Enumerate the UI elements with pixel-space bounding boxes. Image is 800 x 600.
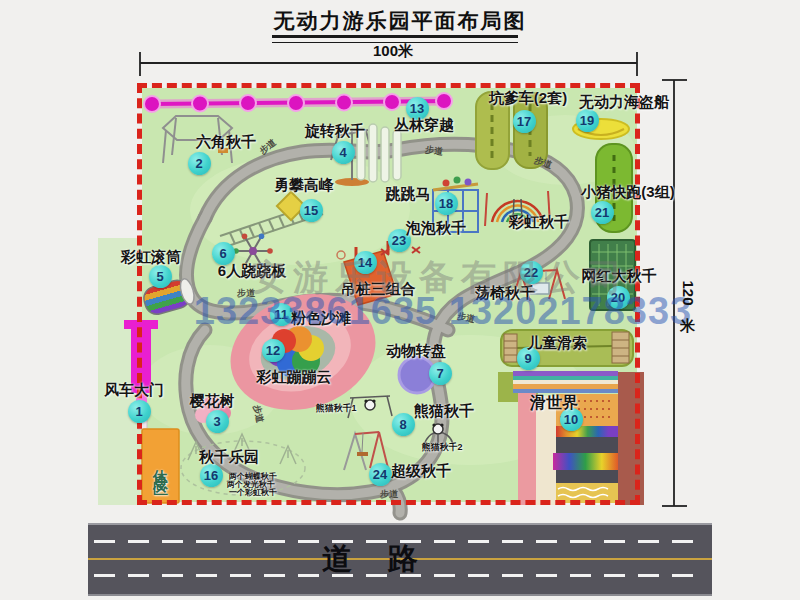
poi-label-21: 小猪快跑(3组) — [581, 183, 674, 202]
poi-label-10: 滑世界 — [530, 393, 578, 414]
poi-label-1: 风车大门 — [104, 381, 164, 400]
poi-label-2: 六角秋千 — [196, 133, 256, 152]
poi-label-9: 儿童滑索 — [527, 334, 587, 353]
dimension-height-label: 120米 — [678, 280, 697, 305]
path-label-5: 步道 — [250, 404, 266, 424]
map-label-3: 熊猫秋千2 — [421, 441, 462, 454]
poi-badge-3: 3 — [206, 410, 229, 433]
map-label-2: 熊猫秋千1 — [315, 402, 356, 415]
map-label-6: 一个彩虹秋千 — [229, 487, 277, 498]
page-title: 无动力游乐园平面布局图 — [0, 7, 800, 35]
poi-badge-15: 15 — [300, 199, 323, 222]
poi-badge-5: 5 — [149, 265, 172, 288]
screenshot-root: 无动力游乐园平面布局图 100米 120米 1风车大门2六角秋千3樱花树4旋转秋… — [0, 0, 800, 600]
poi-label-19: 无动力海盗船 — [579, 93, 669, 112]
map-label-0: 彩虹秋千 — [509, 213, 569, 232]
poi-label-17: 坑爹车(2套) — [489, 89, 567, 108]
poi-badge-24: 24 — [369, 463, 392, 486]
path-label-6: 步道 — [380, 488, 398, 501]
poi-label-13: 丛林穿越 — [394, 116, 454, 135]
watermark-phone: 13233861635 13202178333 — [194, 290, 693, 333]
poi-label-12: 彩虹蹦蹦云 — [257, 368, 332, 387]
poi-label-23: 泡泡秋千 — [406, 219, 466, 238]
poi-label-4: 旋转秋千 — [305, 122, 365, 141]
path-label-1: 步道 — [424, 143, 444, 158]
map-label-1: 休息区 — [151, 457, 170, 475]
poi-label-8: 熊猫秋千 — [414, 402, 474, 421]
poi-badge-21: 21 — [591, 201, 614, 224]
poi-label-7: 动物转盘 — [386, 342, 446, 361]
poi-badge-17: 17 — [513, 110, 536, 133]
poi-badge-16: 16 — [200, 464, 223, 487]
path-label-0: 步道 — [257, 136, 279, 157]
poi-badge-1: 1 — [128, 400, 151, 423]
poi-badge-18: 18 — [435, 192, 458, 215]
poi-label-15: 勇攀高峰 — [274, 176, 334, 195]
poi-label-3: 樱花树 — [190, 392, 235, 411]
poi-label-18: 跳跳马 — [386, 185, 431, 204]
poi-badge-2: 2 — [188, 152, 211, 175]
poi-badge-8: 8 — [392, 413, 415, 436]
poi-badge-19: 19 — [576, 109, 599, 132]
poi-label-5: 彩虹滚筒 — [121, 248, 181, 267]
path-label-2: 步道 — [532, 154, 553, 172]
poi-label-16: 秋千乐园 — [199, 448, 259, 467]
poi-badge-4: 4 — [332, 141, 355, 164]
poi-label-24: 超级秋千 — [391, 462, 451, 481]
poi-badge-7: 7 — [429, 362, 452, 385]
poi-badge-12: 12 — [262, 339, 285, 362]
dimension-width-label: 100米 — [373, 42, 413, 61]
